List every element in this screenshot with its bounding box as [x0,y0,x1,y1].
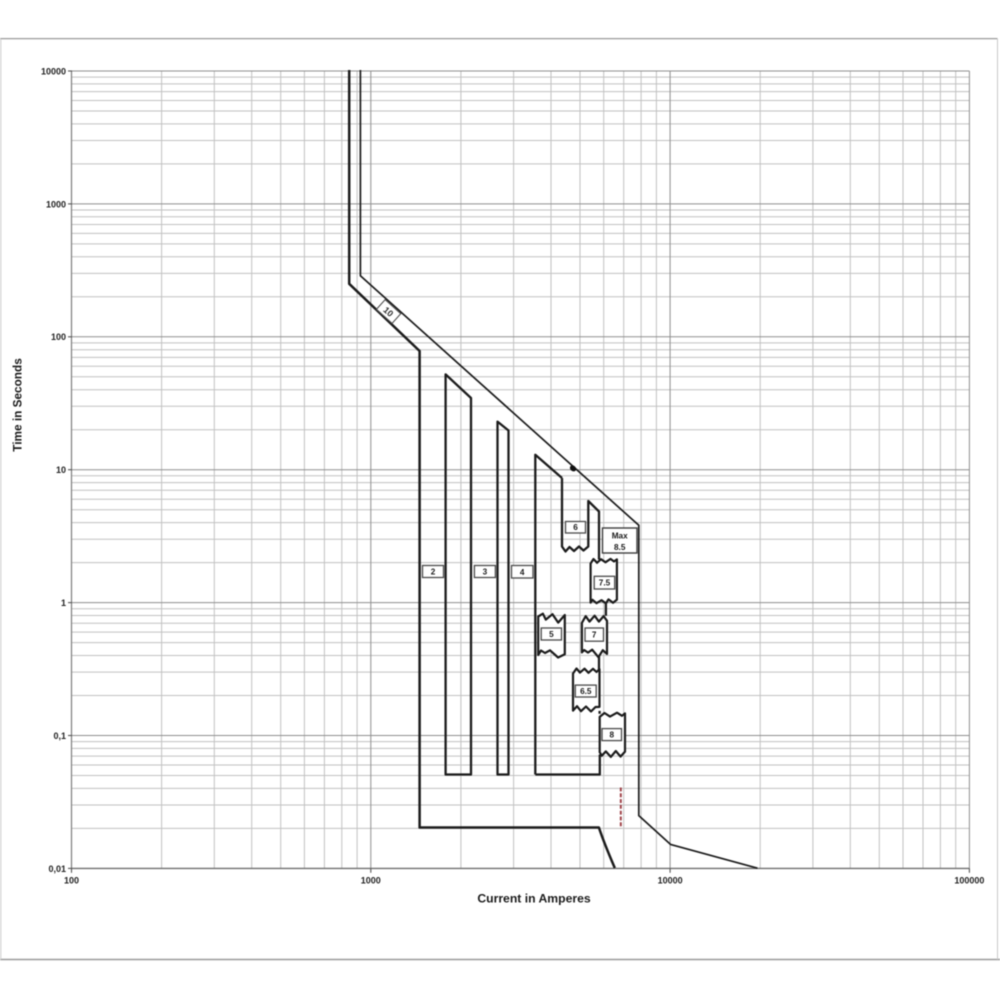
svg-text:5: 5 [549,630,554,639]
svg-text:1: 1 [61,598,66,608]
svg-text:Time in Seconds: Time in Seconds [11,358,25,452]
svg-text:10000: 10000 [41,66,66,76]
svg-text:100000: 100000 [954,876,984,886]
svg-text:10000: 10000 [658,876,683,886]
svg-text:6.5: 6.5 [580,687,592,696]
svg-text:1000: 1000 [361,876,381,886]
svg-text:8.5: 8.5 [614,543,626,552]
svg-text:6: 6 [573,523,578,532]
svg-text:Max: Max [612,532,628,541]
svg-text:7: 7 [592,631,597,640]
svg-text:100: 100 [64,876,79,886]
svg-text:100: 100 [51,332,66,342]
svg-text:8: 8 [610,731,615,740]
svg-text:4: 4 [520,568,525,577]
svg-text:Current in Amperes: Current in Amperes [477,892,591,906]
svg-text:0,1: 0,1 [53,731,66,741]
svg-text:7.5: 7.5 [599,579,611,588]
svg-text:1000: 1000 [46,199,66,209]
svg-text:2: 2 [431,568,436,577]
svg-text:10: 10 [56,465,66,475]
svg-text:3: 3 [483,568,488,577]
svg-text:0,01: 0,01 [48,864,66,874]
